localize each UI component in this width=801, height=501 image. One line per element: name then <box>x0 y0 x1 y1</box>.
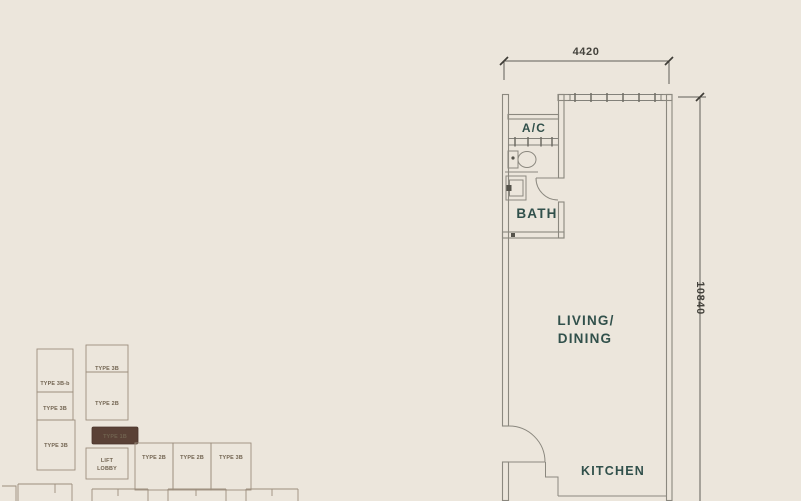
keyplan-unit-label: TYPE 3B <box>44 443 68 449</box>
wall-bath-right-upper <box>559 95 565 179</box>
bath-label: BATH <box>516 206 557 221</box>
key-plan: TYPE 3B-b TYPE 3B TYPE 3B TYPE 3B TYPE 2… <box>2 345 298 501</box>
walls <box>503 95 673 501</box>
ac-louvre <box>508 137 558 147</box>
wall-ac-top <box>508 115 559 120</box>
toilet-fixture <box>508 151 536 168</box>
ac-label: A/C <box>522 121 546 135</box>
keyplan-unit-type2b-bottom-1 <box>135 443 173 490</box>
keyplan-unit-label: TYPE 2B <box>142 455 166 461</box>
keyplan-unit-type2b-bottom-2 <box>173 443 211 490</box>
wall-left-lower <box>503 462 509 501</box>
keyplan-partial-outlines <box>2 484 298 501</box>
keyplan-unit-label: TYPE 3B <box>219 455 243 461</box>
keyplan-unit-label: TYPE 3B <box>95 366 119 372</box>
keyplan-unit-label: TYPE 2B <box>180 455 204 461</box>
entrance-door <box>509 426 545 462</box>
floorplan-drawing: A/C BATH LIVING/ DINING KITCHEN 4420 108… <box>0 0 801 501</box>
floor-trap <box>511 233 515 237</box>
vanity-fixture <box>506 176 526 200</box>
dimension-right: 10840 <box>678 93 706 501</box>
keyplan-unit-type2b-right-mid <box>86 372 128 420</box>
keyplan-unit-type3b-bottom-3 <box>211 443 251 490</box>
wall-left-upper <box>503 95 509 427</box>
living-dining-label-line1: LIVING/ <box>557 313 614 328</box>
keyplan-lift-lobby: LIFT LOBBY <box>86 448 128 479</box>
wall-bath-right-lower <box>559 202 565 238</box>
wall-right <box>667 95 673 501</box>
window-top <box>568 93 663 102</box>
keyplan-highlighted-unit: TYPE 1B <box>92 427 138 444</box>
wall-entry-step <box>546 462 559 496</box>
dimension-top-value: 4420 <box>573 46 600 58</box>
keyplan-lobby-label-line1: LIFT <box>101 458 114 464</box>
keyplan-highlight-label: TYPE 1B <box>103 434 127 440</box>
kitchen-label: KITCHEN <box>581 464 645 478</box>
bath-door <box>536 178 558 200</box>
dimension-right-value: 10840 <box>694 281 706 315</box>
floorplan-page: A/C BATH LIVING/ DINING KITCHEN 4420 108… <box>0 0 801 501</box>
keyplan-unit-label: TYPE 2B <box>95 401 119 407</box>
unit-floor-plan: A/C BATH LIVING/ DINING KITCHEN <box>503 93 673 501</box>
keyplan-unit-label: TYPE 3B <box>43 406 67 412</box>
dimension-top: 4420 <box>500 46 673 84</box>
keyplan-unit-label: TYPE 3B-b <box>40 381 70 387</box>
keyplan-lobby-label-line2: LOBBY <box>97 466 117 472</box>
living-dining-label-line2: DINING <box>558 331 612 346</box>
